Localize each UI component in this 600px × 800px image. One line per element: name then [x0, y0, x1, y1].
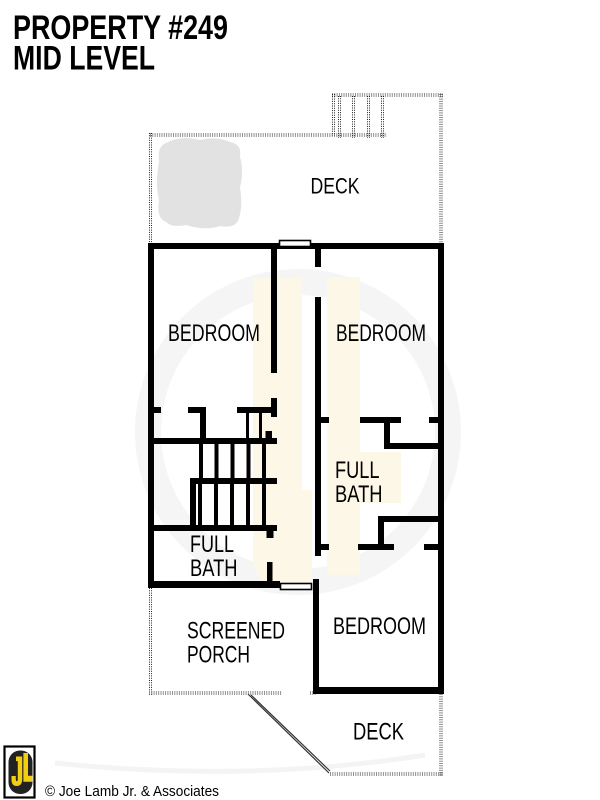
svg-text:SCREENED: SCREENED — [187, 618, 285, 645]
svg-text:BEDROOM: BEDROOM — [333, 613, 426, 640]
svg-text:BATH: BATH — [335, 481, 383, 508]
svg-text:FULL: FULL — [335, 457, 380, 484]
svg-text:DECK: DECK — [311, 174, 360, 199]
svg-text:PORCH: PORCH — [187, 642, 250, 669]
svg-text:BEDROOM: BEDROOM — [168, 320, 260, 347]
svg-text:© Joe Lamb Jr. & Associates: © Joe Lamb Jr. & Associates — [45, 784, 219, 800]
svg-text:BEDROOM: BEDROOM — [336, 320, 426, 347]
svg-text:FULL: FULL — [190, 531, 234, 558]
svg-text:BATH: BATH — [190, 555, 238, 582]
svg-text:MID LEVEL: MID LEVEL — [13, 40, 155, 78]
svg-text:DECK: DECK — [353, 719, 404, 746]
